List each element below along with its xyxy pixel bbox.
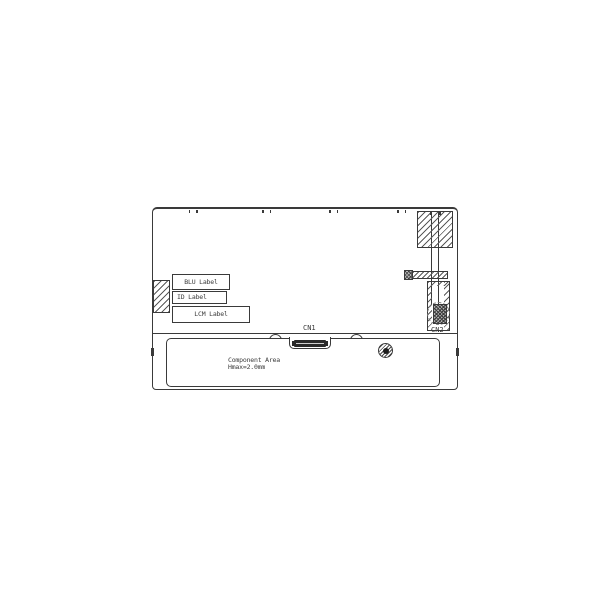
ground-screw <box>378 343 393 358</box>
wire-strip <box>412 271 448 279</box>
id-label-box: ID Label <box>172 291 227 304</box>
left-mount-hatch <box>153 280 170 313</box>
lcm-label-box: LCM Label <box>172 306 250 323</box>
blu-label-text: BLU Label <box>184 279 217 286</box>
ground-screw-center <box>383 348 389 354</box>
lcm-label-text: LCM Label <box>194 311 227 318</box>
component-area-note: Component Area Hmax=2.0mm <box>228 357 280 371</box>
top-edge-tick <box>196 210 198 213</box>
top-edge-tick <box>397 210 399 213</box>
cn2-connector <box>433 304 447 324</box>
id-label-text: ID Label <box>177 294 207 301</box>
left-edge-tab <box>151 348 154 356</box>
top-edge-tick <box>189 210 191 213</box>
cn1-connector-tab <box>325 341 328 346</box>
frame-step-line <box>152 333 458 334</box>
component-area-line2: Hmax=2.0mm <box>228 364 280 371</box>
cable-anchor-tick <box>439 211 441 215</box>
cn1-label: CN1 <box>303 324 316 332</box>
top-edge-tick <box>270 210 272 213</box>
cn1-connector <box>294 340 326 347</box>
cn1-connector-tab <box>292 341 295 346</box>
cn2-housing-top-cap <box>428 282 449 286</box>
drawing-canvas: BLU Label ID Label LCM Label CN2 CN1 <box>0 0 600 600</box>
blu-label-box: BLU Label <box>172 274 230 290</box>
cable-anchor-tick <box>430 211 432 215</box>
top-edge-tick <box>337 210 339 213</box>
cn1-connector-slot <box>296 343 324 344</box>
right-edge-tab <box>456 348 459 356</box>
top-right-hatch-block <box>417 211 453 248</box>
top-edge-tick <box>329 210 331 213</box>
top-edge-tick <box>262 210 264 213</box>
top-edge-tick <box>405 210 407 213</box>
